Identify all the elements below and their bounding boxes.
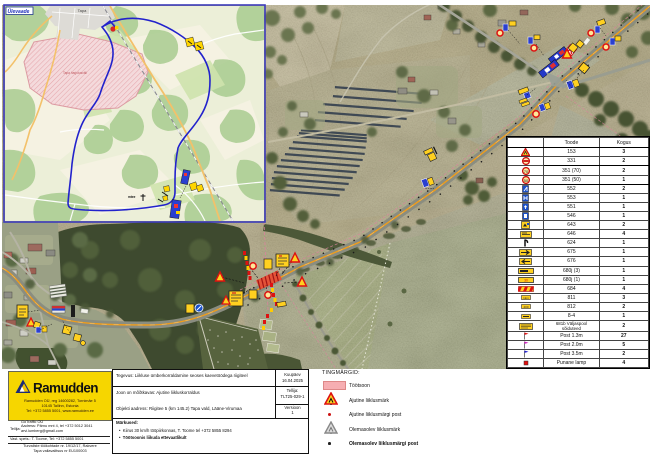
svg-text:70: 70 xyxy=(523,168,528,173)
svg-text:Ramudden: Ramudden xyxy=(33,381,98,396)
svg-text:30: 30 xyxy=(524,278,528,282)
svg-text:200: 200 xyxy=(523,305,528,309)
svg-text:1km: 1km xyxy=(523,296,529,300)
svg-text:Tapa harjutusväli: Tapa harjutusväli xyxy=(63,71,87,75)
svg-text:Tapa: Tapa xyxy=(78,8,87,13)
svg-text:mtee: mtee xyxy=(128,195,136,199)
svg-text:Ülevaade: Ülevaade xyxy=(8,8,30,15)
svg-text:50: 50 xyxy=(523,177,528,182)
